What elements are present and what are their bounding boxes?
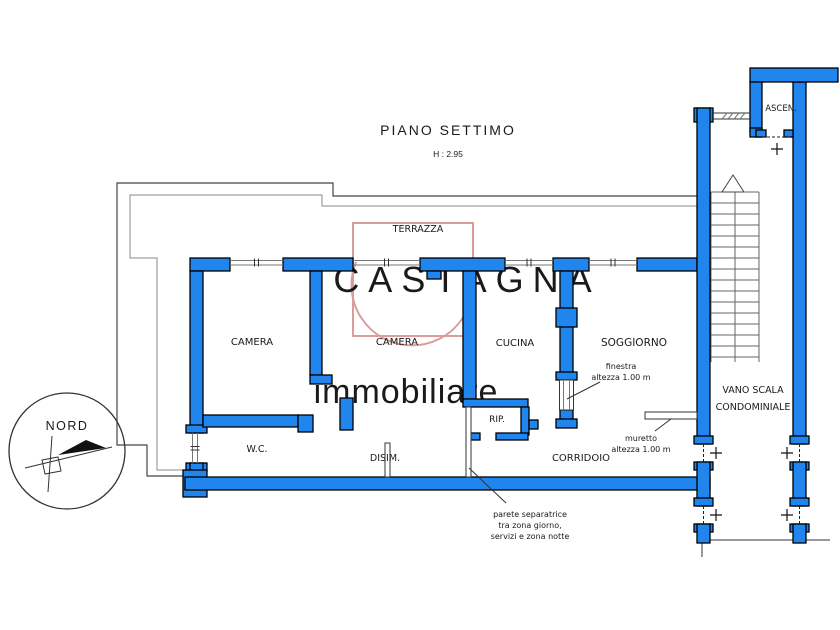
wall-cucina-west bbox=[463, 271, 476, 399]
annotation-muretto-2: altezza 1.00 m bbox=[611, 445, 670, 454]
page-title: PIANO SETTIMO bbox=[380, 122, 516, 138]
stairwell-bottom-line bbox=[702, 540, 830, 557]
stair-stringers bbox=[711, 192, 759, 362]
annotation-parete-1: parete separatrice bbox=[493, 510, 567, 519]
north-compass: NORD bbox=[9, 393, 125, 509]
room-label-camera-1: CAMERA bbox=[231, 337, 273, 348]
room-label-ascensore: ASCEN. bbox=[765, 104, 797, 114]
room-label-disimpegno: DISIM. bbox=[370, 453, 400, 464]
wall-stairblock-right bbox=[790, 82, 809, 543]
staircase bbox=[702, 175, 830, 557]
annotation-parete-2: tra zona giorno, bbox=[498, 521, 561, 530]
wall-wc-north bbox=[203, 415, 313, 432]
thin-partition-separatrice bbox=[466, 407, 471, 477]
annotation-muretto-1: muretto bbox=[625, 434, 657, 443]
room-label-terrazza: TERRAZZA bbox=[392, 224, 444, 235]
opening-cross-icons bbox=[710, 143, 793, 521]
compass-needle-icon bbox=[25, 436, 112, 492]
room-label-vano-scala-1: VANO SCALA bbox=[722, 385, 784, 396]
room-label-cucina: CUCINA bbox=[496, 338, 535, 349]
wall-bottom-exterior bbox=[183, 470, 710, 497]
floor-plan-page: CASTAGNA immobiliare bbox=[0, 0, 840, 630]
ceiling-height-note: H : 2.95 bbox=[433, 149, 463, 159]
room-label-camera-2: CAMERA bbox=[376, 337, 418, 348]
opening-markers bbox=[704, 137, 800, 524]
terrace-inner-line bbox=[130, 195, 697, 470]
annotation-parete-3: servizi e zona notte bbox=[491, 532, 570, 541]
room-label-corridoio: CORRIDOIO bbox=[552, 453, 610, 464]
wall-left-exterior bbox=[186, 271, 207, 490]
room-label-wc: W.C. bbox=[247, 444, 268, 455]
compass-label: NORD bbox=[46, 419, 89, 433]
stair-direction-arrow-icon bbox=[722, 175, 744, 192]
window-soggiorno-internal bbox=[560, 380, 574, 410]
window-left-wc bbox=[191, 433, 200, 463]
room-label-soggiorno: SOGGIORNO bbox=[601, 337, 667, 349]
window-top-1 bbox=[230, 259, 283, 267]
window-elevator-side bbox=[713, 113, 750, 119]
muretto-low-wall bbox=[645, 412, 697, 419]
walls bbox=[183, 68, 838, 543]
floor-plan-drawing: CASTAGNA immobiliare bbox=[0, 0, 840, 630]
annotation-finestra-1: finestra bbox=[606, 362, 637, 371]
opening-dashed-lines bbox=[704, 137, 800, 524]
wall-stairblock-left bbox=[694, 108, 713, 543]
room-label-vano-scala-2: CONDOMINIALE bbox=[716, 402, 791, 413]
annotation-finestra-2: altezza 1.00 m bbox=[591, 373, 650, 382]
room-label-ripostiglio: RIP. bbox=[489, 415, 505, 425]
leader-muretto bbox=[655, 419, 671, 431]
